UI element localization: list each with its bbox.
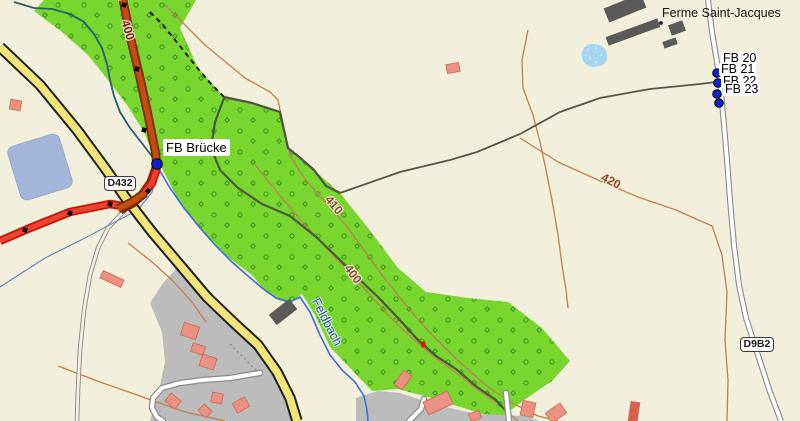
map-layers xyxy=(0,0,800,421)
map-canvas[interactable]: 400 410 400 420 Feldbach Ferme Saint-Jac… xyxy=(0,0,800,421)
road-shield-d9b2: D9B2 xyxy=(740,337,774,352)
waypoint-label-fb-bruecke[interactable]: FB Brücke xyxy=(163,139,230,156)
road-shield-d432: D432 xyxy=(104,176,136,191)
waypoint-dot-fb22[interactable] xyxy=(713,90,722,99)
waypoint-dot-fb23[interactable] xyxy=(715,99,724,108)
waypoint-label-fb23[interactable]: FB 23 xyxy=(723,83,760,96)
farm-name-label: Ferme Saint-Jacques xyxy=(662,6,781,20)
farm-poi-dot-icon xyxy=(659,21,663,25)
waypoint-dot-fb-bruecke[interactable] xyxy=(152,159,163,170)
